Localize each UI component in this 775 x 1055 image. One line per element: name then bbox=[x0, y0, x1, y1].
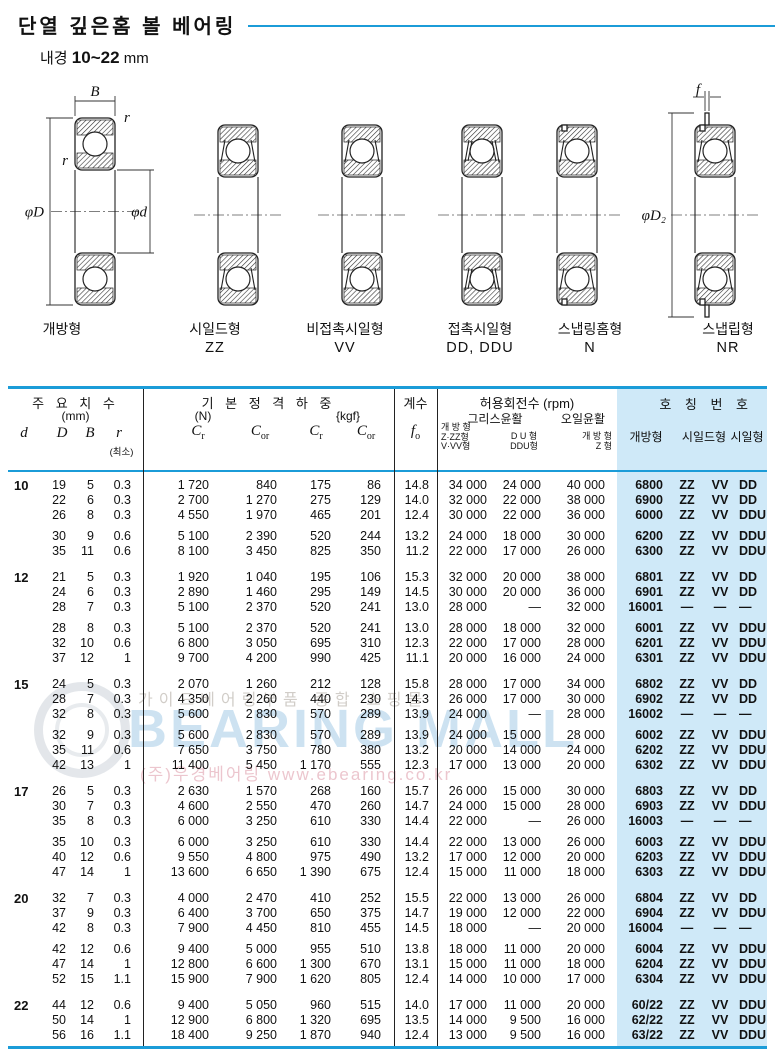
table-row: 2870.34 3502 26044023014.326 00017 00030… bbox=[8, 692, 767, 707]
cell: 490 bbox=[337, 850, 394, 865]
cell: 22 000 bbox=[437, 835, 497, 850]
diagram-caption-2: 시일드형ZZ bbox=[140, 320, 290, 358]
cell: 15.7 bbox=[394, 784, 437, 799]
cell-d bbox=[8, 728, 38, 743]
subtitle-value: 10~22 bbox=[72, 48, 120, 67]
cell: DDU bbox=[737, 835, 767, 850]
cell: 4 350 bbox=[143, 692, 213, 707]
row-subgroup: 101950.31 7208401758614.834 00024 00040 … bbox=[8, 478, 767, 523]
cell: 24 000 bbox=[553, 651, 617, 666]
cell: 1 bbox=[102, 758, 143, 773]
cell: VV bbox=[703, 544, 737, 559]
table-row: 122150.31 9201 04019510615.332 00020 000… bbox=[8, 570, 767, 585]
cell: 9 550 bbox=[143, 850, 213, 865]
cell: 175 bbox=[281, 478, 337, 493]
cell: 650 bbox=[281, 906, 337, 921]
bearing-type-name: 개방형 bbox=[0, 320, 137, 339]
cell: 14.7 bbox=[394, 906, 437, 921]
cell: 6903 bbox=[617, 799, 671, 814]
cell: 22 000 bbox=[497, 508, 553, 523]
cell: 1 870 bbox=[281, 1028, 337, 1043]
bearing-type-name: 시일드형 bbox=[140, 320, 290, 339]
cell: 14.5 bbox=[394, 585, 437, 600]
col-header-speed-oil-open: 개 방 형Z 형 bbox=[552, 432, 612, 451]
cell: — bbox=[737, 600, 767, 615]
cell: 26 bbox=[38, 508, 74, 523]
cell: 6 400 bbox=[143, 906, 213, 921]
cell: 3 750 bbox=[213, 743, 281, 758]
cell: 5 100 bbox=[143, 600, 213, 615]
cell: 13.8 bbox=[394, 942, 437, 957]
cell: 1 040 bbox=[213, 570, 281, 585]
cell: 13.9 bbox=[394, 707, 437, 722]
cell: 15 000 bbox=[437, 957, 497, 972]
cell: 0.3 bbox=[102, 600, 143, 615]
cell: 22 bbox=[38, 493, 74, 508]
cell: 28 000 bbox=[553, 728, 617, 743]
cell: 1 920 bbox=[143, 570, 213, 585]
table-row: 371219 7004 20099042511.120 00016 00024 … bbox=[8, 651, 767, 666]
cell: VV bbox=[703, 906, 737, 921]
diagram-caption-6: 스냅립형NR bbox=[653, 320, 775, 358]
cell: 6204 bbox=[617, 957, 671, 972]
table-row: 40120.69 5504 80097549013.217 00012 0002… bbox=[8, 850, 767, 865]
cell: 17 000 bbox=[437, 758, 497, 773]
cell: 22 000 bbox=[437, 814, 497, 829]
table-row: 35110.68 1003 45082535011.222 00017 0002… bbox=[8, 544, 767, 559]
cell: 4 600 bbox=[143, 799, 213, 814]
cell: 195 bbox=[281, 570, 337, 585]
cell: DD bbox=[737, 493, 767, 508]
cell: 13 000 bbox=[497, 758, 553, 773]
cell: 30 bbox=[38, 799, 74, 814]
cell: 805 bbox=[337, 972, 394, 987]
cell: — bbox=[703, 707, 737, 722]
cell: 6 800 bbox=[143, 636, 213, 651]
cell: 32 000 bbox=[553, 621, 617, 636]
cell: 13 000 bbox=[497, 835, 553, 850]
cell: VV bbox=[703, 835, 737, 850]
cell: 3 450 bbox=[213, 544, 281, 559]
cell: 24 bbox=[38, 585, 74, 600]
cell: ZZ bbox=[671, 585, 703, 600]
cell: 32 000 bbox=[437, 570, 497, 585]
cell: 26 000 bbox=[553, 835, 617, 850]
cell: DDU bbox=[737, 508, 767, 523]
cell: DDU bbox=[737, 942, 767, 957]
cell: — bbox=[703, 600, 737, 615]
cell: 7 650 bbox=[143, 743, 213, 758]
cell: 13 000 bbox=[497, 891, 553, 906]
cell: 5 000 bbox=[213, 942, 281, 957]
table-row: 4280.37 9004 45081045514.518 000—20 0001… bbox=[8, 921, 767, 936]
cell: 12.4 bbox=[394, 972, 437, 987]
cell: 570 bbox=[281, 707, 337, 722]
cell-d: 17 bbox=[8, 784, 38, 799]
cell: 26 000 bbox=[437, 784, 497, 799]
bore-group-12: 122150.31 9201 04019510615.332 00020 000… bbox=[8, 570, 767, 666]
cell: 24 000 bbox=[437, 728, 497, 743]
cell: VV bbox=[703, 692, 737, 707]
cell: 1 460 bbox=[213, 585, 281, 600]
cell-d bbox=[8, 600, 38, 615]
cell: 4 200 bbox=[213, 651, 281, 666]
cell: 0.3 bbox=[102, 692, 143, 707]
cell: 12.4 bbox=[394, 1028, 437, 1043]
cell: 12.4 bbox=[394, 508, 437, 523]
cell: 6804 bbox=[617, 891, 671, 906]
cell: 37 bbox=[38, 651, 74, 666]
cell: ZZ bbox=[671, 1028, 703, 1043]
table-row: 3290.35 6002 83057028913.924 00015 00028… bbox=[8, 728, 767, 743]
cell: DD bbox=[737, 478, 767, 493]
cell: — bbox=[497, 921, 553, 936]
cell: ZZ bbox=[671, 508, 703, 523]
cell: 9 700 bbox=[143, 651, 213, 666]
cell: 6 800 bbox=[213, 1013, 281, 1028]
cell-d: 22 bbox=[8, 998, 38, 1013]
cell: 9 400 bbox=[143, 942, 213, 957]
cell: 6304 bbox=[617, 972, 671, 987]
cell: — bbox=[703, 921, 737, 936]
cell: 12 000 bbox=[497, 906, 553, 921]
cell: 6001 bbox=[617, 621, 671, 636]
cell: 289 bbox=[337, 707, 394, 722]
col-header-D: D bbox=[46, 425, 78, 442]
cell: 17 000 bbox=[497, 692, 553, 707]
cell: 13 bbox=[74, 758, 102, 773]
cell: 26 000 bbox=[553, 814, 617, 829]
cell: ZZ bbox=[671, 677, 703, 692]
table-row: 3070.34 6002 55047026014.724 00015 00028… bbox=[8, 799, 767, 814]
cell-d bbox=[8, 707, 38, 722]
svg-text:r: r bbox=[124, 110, 130, 126]
cell: 9 bbox=[74, 529, 102, 544]
cell-d: 15 bbox=[8, 677, 38, 692]
cell: 5 bbox=[74, 570, 102, 585]
cell: 12 bbox=[74, 850, 102, 865]
cell: ZZ bbox=[671, 544, 703, 559]
cell: 11 000 bbox=[497, 865, 553, 880]
header-load-unit-kgf: {kgf} bbox=[303, 409, 393, 423]
cell: 15.3 bbox=[394, 570, 437, 585]
cell-d bbox=[8, 692, 38, 707]
cell: 24 000 bbox=[553, 743, 617, 758]
cell: 0.3 bbox=[102, 570, 143, 585]
cell: 12.3 bbox=[394, 636, 437, 651]
cell: 19 bbox=[38, 478, 74, 493]
col-header-d: d bbox=[10, 425, 38, 442]
col-header-cor-kgf: Cor bbox=[341, 423, 391, 442]
cell: 555 bbox=[337, 758, 394, 773]
cell: 16 000 bbox=[497, 651, 553, 666]
cell: 14.7 bbox=[394, 799, 437, 814]
cell: 9 500 bbox=[497, 1028, 553, 1043]
col-header-fo: fo bbox=[394, 423, 437, 442]
cell: 17 000 bbox=[497, 636, 553, 651]
cell: 28 000 bbox=[437, 600, 497, 615]
cell: 780 bbox=[281, 743, 337, 758]
cell: ZZ bbox=[671, 906, 703, 921]
cell: VV bbox=[703, 998, 737, 1013]
cell: 268 bbox=[281, 784, 337, 799]
cell: ZZ bbox=[671, 621, 703, 636]
cell: 6 600 bbox=[213, 957, 281, 972]
cell: 30 000 bbox=[437, 508, 497, 523]
cell: 40 bbox=[38, 850, 74, 865]
cell: 2 370 bbox=[213, 600, 281, 615]
cell: 2 830 bbox=[213, 707, 281, 722]
cell-d bbox=[8, 758, 38, 773]
cell: 9 500 bbox=[497, 1013, 553, 1028]
cell: 15.5 bbox=[394, 891, 437, 906]
cell: 0.3 bbox=[102, 906, 143, 921]
cell: 28 000 bbox=[553, 636, 617, 651]
cell: DDU bbox=[737, 758, 767, 773]
cell: 32 bbox=[38, 891, 74, 906]
cell: 6003 bbox=[617, 835, 671, 850]
cell: DDU bbox=[737, 972, 767, 987]
cell: VV bbox=[703, 636, 737, 651]
cell: 5 600 bbox=[143, 707, 213, 722]
table-row: 35110.67 6503 75078038013.220 00014 0002… bbox=[8, 743, 767, 758]
diagram-caption-1: 개방형 bbox=[0, 320, 137, 339]
cell-d: 20 bbox=[8, 891, 38, 906]
cell: 13 000 bbox=[437, 1028, 497, 1043]
cell: 6 bbox=[74, 493, 102, 508]
table-row: 32100.66 8003 05069531012.322 00017 0002… bbox=[8, 636, 767, 651]
cell: DD bbox=[737, 891, 767, 906]
cell: 34 000 bbox=[553, 677, 617, 692]
cell: — bbox=[737, 921, 767, 936]
cell: VV bbox=[703, 799, 737, 814]
cell: 22 000 bbox=[437, 636, 497, 651]
cell-d bbox=[8, 529, 38, 544]
cell: ZZ bbox=[671, 493, 703, 508]
cell-d: 12 bbox=[8, 570, 38, 585]
cell: 2 470 bbox=[213, 891, 281, 906]
cell: 149 bbox=[337, 585, 394, 600]
cell-d bbox=[8, 621, 38, 636]
cell-d bbox=[8, 850, 38, 865]
header-dimensions-unit: (mm) bbox=[8, 409, 143, 423]
cell: 1 bbox=[102, 865, 143, 880]
cell: 520 bbox=[281, 529, 337, 544]
cell: 4 800 bbox=[213, 850, 281, 865]
cell: 990 bbox=[281, 651, 337, 666]
cell: 18 000 bbox=[437, 942, 497, 957]
row-subgroup: 2244120.69 4005 05096051514.017 00011 00… bbox=[8, 998, 767, 1043]
cell: ZZ bbox=[671, 865, 703, 880]
cell: 0.3 bbox=[102, 621, 143, 636]
cell: 7 900 bbox=[213, 972, 281, 987]
cell: 330 bbox=[337, 835, 394, 850]
cell: 15 000 bbox=[497, 728, 553, 743]
cell: 1 170 bbox=[281, 758, 337, 773]
svg-text:f: f bbox=[696, 82, 702, 98]
cell: DDU bbox=[737, 906, 767, 921]
cell: 5 bbox=[74, 677, 102, 692]
cell: 14.4 bbox=[394, 835, 437, 850]
cell: 13.2 bbox=[394, 743, 437, 758]
cell: 28 000 bbox=[437, 621, 497, 636]
cell: DDU bbox=[737, 1028, 767, 1043]
cell: 6802 bbox=[617, 677, 671, 692]
cell: 3 250 bbox=[213, 814, 281, 829]
cell: 9 250 bbox=[213, 1028, 281, 1043]
cell-d: 10 bbox=[8, 478, 38, 493]
cell: 13 600 bbox=[143, 865, 213, 880]
cell: 42 bbox=[38, 758, 74, 773]
cell: 28 000 bbox=[553, 799, 617, 814]
cell: 6002 bbox=[617, 728, 671, 743]
cell: 15 000 bbox=[497, 784, 553, 799]
cell: 36 000 bbox=[553, 508, 617, 523]
cell: 675 bbox=[337, 865, 394, 880]
cell: — bbox=[671, 921, 703, 936]
cell: 0.3 bbox=[102, 728, 143, 743]
cell: 13.2 bbox=[394, 529, 437, 544]
cell: — bbox=[671, 707, 703, 722]
page-title: 단열 깊은홈 볼 베어링 bbox=[18, 10, 236, 39]
cell: DD bbox=[737, 570, 767, 585]
cell: VV bbox=[703, 784, 737, 799]
cell: 425 bbox=[337, 651, 394, 666]
cell: 201 bbox=[337, 508, 394, 523]
cell: 241 bbox=[337, 621, 394, 636]
cell: 11 000 bbox=[497, 998, 553, 1013]
cell: 1.1 bbox=[102, 972, 143, 987]
cell: 212 bbox=[281, 677, 337, 692]
cell: 8 bbox=[74, 707, 102, 722]
cell: 975 bbox=[281, 850, 337, 865]
cell: 18 400 bbox=[143, 1028, 213, 1043]
cell: 1 620 bbox=[281, 972, 337, 987]
col-header-cr-n: Cr bbox=[173, 423, 223, 442]
cell: 1 270 bbox=[213, 493, 281, 508]
cell: 570 bbox=[281, 728, 337, 743]
cell: 24 000 bbox=[437, 707, 497, 722]
cell: 14.0 bbox=[394, 493, 437, 508]
bearing-type-code: ZZ bbox=[140, 339, 290, 358]
cell: VV bbox=[703, 478, 737, 493]
cell: 17 000 bbox=[497, 544, 553, 559]
cell: 0.3 bbox=[102, 921, 143, 936]
cell: 18 000 bbox=[497, 621, 553, 636]
cell: 520 bbox=[281, 621, 337, 636]
cell-d bbox=[8, 743, 38, 758]
cell: 5 100 bbox=[143, 529, 213, 544]
cell: VV bbox=[703, 1013, 737, 1028]
cell: 14.5 bbox=[394, 921, 437, 936]
cell: 0.6 bbox=[102, 942, 143, 957]
bearing-diagrams: BrrφDφdφD₂f bbox=[0, 82, 775, 318]
cell: 6800 bbox=[617, 478, 671, 493]
cell: ZZ bbox=[671, 942, 703, 957]
cell: 28 bbox=[38, 692, 74, 707]
cell: 410 bbox=[281, 891, 337, 906]
cell: 0.3 bbox=[102, 799, 143, 814]
cell: 11 000 bbox=[497, 957, 553, 972]
cell: 670 bbox=[337, 957, 394, 972]
cell: 0.6 bbox=[102, 529, 143, 544]
svg-text:φd: φd bbox=[131, 205, 147, 221]
cell: ZZ bbox=[671, 799, 703, 814]
cell: 8 100 bbox=[143, 544, 213, 559]
cell: 18 000 bbox=[553, 865, 617, 880]
cell: ZZ bbox=[671, 998, 703, 1013]
bore-group-20: 203270.34 0002 47041025215.522 00013 000… bbox=[8, 891, 767, 987]
bearing-type-code: NR bbox=[653, 339, 775, 358]
cell: 5 600 bbox=[143, 728, 213, 743]
cell: 241 bbox=[337, 600, 394, 615]
cell: 1 570 bbox=[213, 784, 281, 799]
cell: 14 000 bbox=[497, 743, 553, 758]
cell: 19 000 bbox=[437, 906, 497, 921]
col-header-speed-open: 개 방 형Z·ZZ형V·VV형 bbox=[441, 423, 499, 452]
cell-d bbox=[8, 1028, 38, 1043]
cell: 295 bbox=[281, 585, 337, 600]
cell: 2 390 bbox=[213, 529, 281, 544]
cell: 160 bbox=[337, 784, 394, 799]
cell: DDU bbox=[737, 529, 767, 544]
cell: 14 bbox=[74, 1013, 102, 1028]
cell: 6300 bbox=[617, 544, 671, 559]
header-oil-lubrication: 오일윤활 bbox=[551, 410, 615, 427]
cell: 14 bbox=[74, 957, 102, 972]
cell: VV bbox=[703, 743, 737, 758]
cell: 2 700 bbox=[143, 493, 213, 508]
cell-d bbox=[8, 814, 38, 829]
cell: VV bbox=[703, 1028, 737, 1043]
cell: 56 bbox=[38, 1028, 74, 1043]
cell: 35 bbox=[38, 544, 74, 559]
bearing-type-name: 비접촉시일형 bbox=[270, 320, 420, 339]
cell: 6201 bbox=[617, 636, 671, 651]
cell: 15.8 bbox=[394, 677, 437, 692]
cell-d bbox=[8, 972, 38, 987]
cell: 6203 bbox=[617, 850, 671, 865]
cell: 22 000 bbox=[553, 906, 617, 921]
cell: 289 bbox=[337, 728, 394, 743]
cell: 13.0 bbox=[394, 621, 437, 636]
cell: 1 bbox=[102, 957, 143, 972]
cell: 13.1 bbox=[394, 957, 437, 972]
cell: 47 bbox=[38, 957, 74, 972]
cell: 14.8 bbox=[394, 478, 437, 493]
cell: 1 300 bbox=[281, 957, 337, 972]
cell: 15 900 bbox=[143, 972, 213, 987]
cell: 2 550 bbox=[213, 799, 281, 814]
cell: 2 630 bbox=[143, 784, 213, 799]
table-row: 172650.32 6301 57026816015.726 00015 000… bbox=[8, 784, 767, 799]
cell: 28 000 bbox=[437, 677, 497, 692]
cell: 380 bbox=[337, 743, 394, 758]
cell: 960 bbox=[281, 998, 337, 1013]
cell: 22 000 bbox=[437, 891, 497, 906]
cell: 15 bbox=[74, 972, 102, 987]
cell-d bbox=[8, 921, 38, 936]
cell: 12 bbox=[74, 998, 102, 1013]
cell: 16004 bbox=[617, 921, 671, 936]
cell: 610 bbox=[281, 814, 337, 829]
cell: 20 000 bbox=[553, 758, 617, 773]
cell: VV bbox=[703, 850, 737, 865]
cell: 37 bbox=[38, 906, 74, 921]
cell: 10 bbox=[74, 636, 102, 651]
cell: 0.6 bbox=[102, 850, 143, 865]
cell: 6900 bbox=[617, 493, 671, 508]
